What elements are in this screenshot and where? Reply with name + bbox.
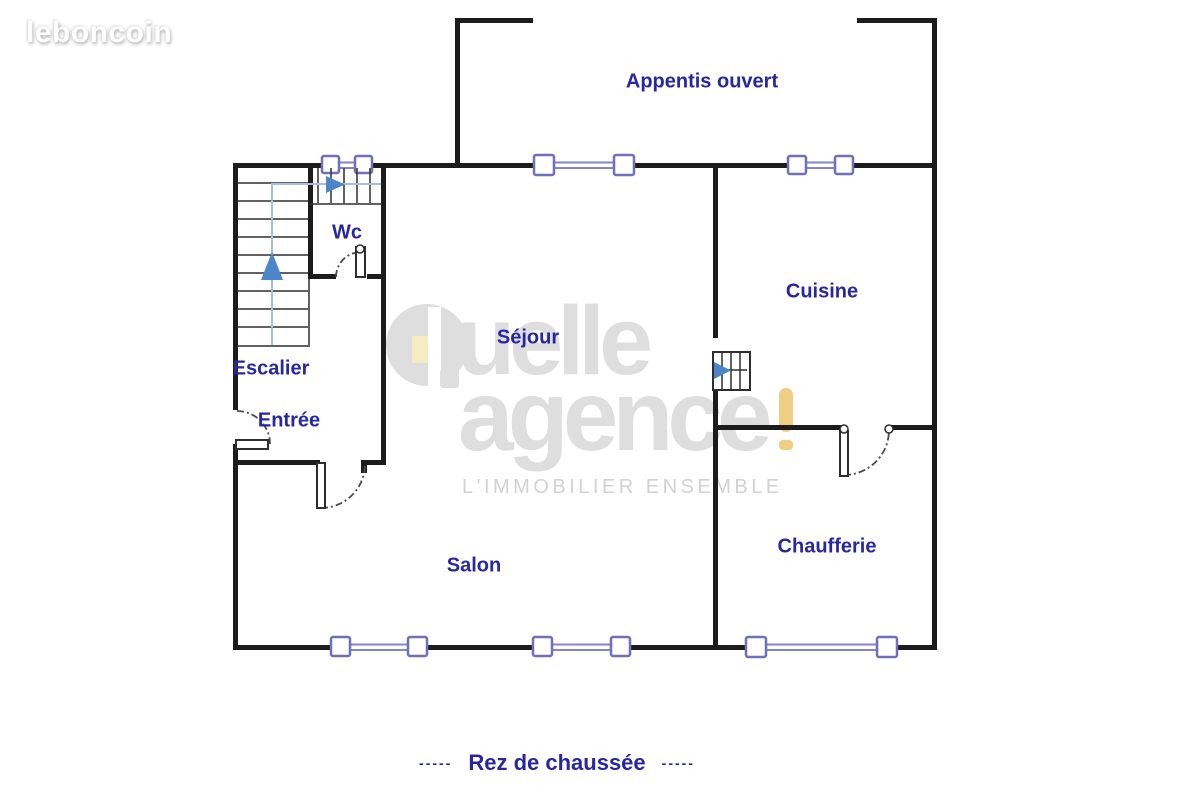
door-swing-chaufferie <box>844 430 889 475</box>
room-label-cuisine: Cuisine <box>786 281 858 304</box>
windows <box>322 155 897 657</box>
room-label-sejour: Séjour <box>497 327 559 350</box>
room-label-entree: Entrée <box>258 410 320 433</box>
floorplan-drawing <box>0 0 1184 800</box>
window-icon <box>331 637 350 656</box>
window-icon <box>614 155 634 175</box>
caption-dashes-right: ----- <box>662 755 695 771</box>
window-icon <box>408 637 427 656</box>
room-label-salon: Salon <box>447 555 501 578</box>
caption-dashes-left: ----- <box>419 755 452 771</box>
window-icon <box>746 637 766 657</box>
window-icon <box>835 156 853 174</box>
room-label-wc: Wc <box>332 222 362 245</box>
window-icon <box>877 637 897 657</box>
caption-text: Rez de chaussée <box>468 750 645 775</box>
room-label-chaufferie: Chaufferie <box>778 536 877 559</box>
stairs-up-arrow-icon <box>261 252 283 280</box>
room-label-appentis: Appentis ouvert <box>626 71 778 94</box>
door-swing-salon <box>321 464 365 508</box>
cellar-staircase <box>713 352 750 390</box>
leboncoin-logo: leboncoin <box>26 16 172 50</box>
window-icon <box>533 637 552 656</box>
stairs-turn-right-arrow-icon <box>326 176 345 193</box>
door-leaf-entree <box>236 440 268 449</box>
door-leaf-salon <box>317 463 325 508</box>
floorplan-page: uelle agence L'IMMOBILIER ENSEMBLE <box>0 0 1184 800</box>
window-icon <box>788 156 806 174</box>
window-icon <box>611 637 630 656</box>
window-icon <box>534 155 554 175</box>
floor-caption: -----Rez de chaussée----- <box>0 750 1114 776</box>
door-leaf-chaufferie <box>840 431 848 476</box>
room-label-escalier: Escalier <box>233 358 310 381</box>
